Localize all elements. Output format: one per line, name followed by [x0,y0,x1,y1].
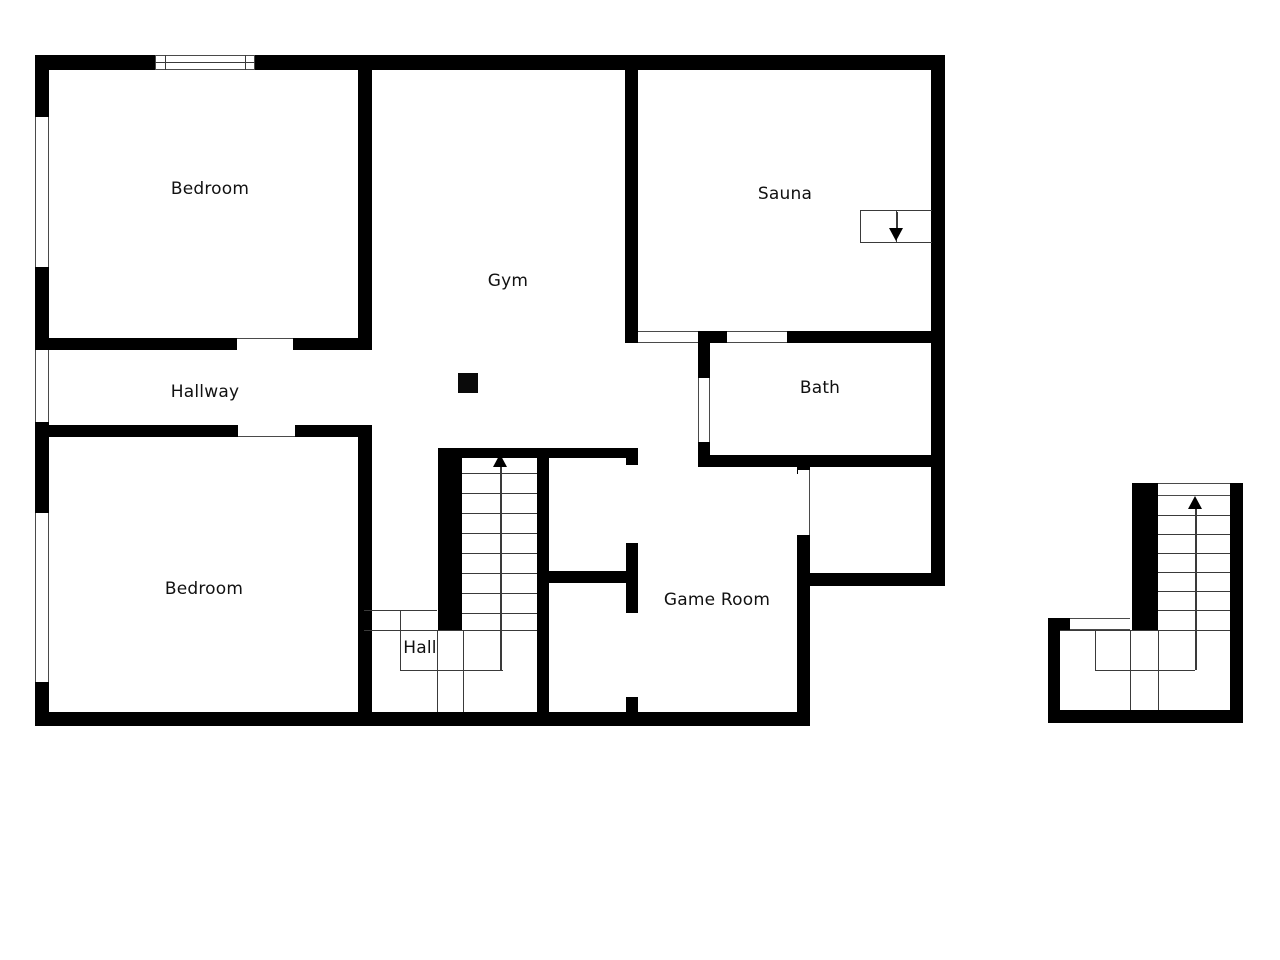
room-label-bedroom-2: Bedroom [165,579,243,599]
wall-segment [35,712,810,726]
stair-tread [1158,553,1230,554]
window-frame-line [1070,618,1130,619]
plan-line [437,630,438,712]
wall-segment [358,70,372,340]
plan-line [1095,670,1195,671]
wall-segment [787,331,931,343]
wall-segment [626,697,638,712]
room-label-gym: Gym [488,271,528,291]
door-opening-line [238,436,295,437]
wall-segment [1048,618,1060,723]
door-opening-line [727,342,787,343]
floor-plan: Bedroom Sauna Gym Hallway Bath Bedroom H… [0,0,1280,960]
wall-segment [35,425,238,437]
wall-segment [358,425,372,712]
plan-line [860,242,932,243]
wall-segment [1048,618,1070,630]
wall-segment [700,455,931,467]
window-frame-line [48,350,49,422]
wall-segment [625,70,638,343]
window-frame-line [48,117,49,267]
stair-tread [1158,534,1230,535]
plan-line [400,610,401,670]
hall-stairs-up-arrow-shaft [500,466,502,670]
wall-segment [35,338,237,350]
wall-segment [255,55,945,70]
plan-line [165,55,166,70]
room-label-hallway: Hallway [171,382,239,402]
plan-line [400,670,503,671]
plan-line [463,630,464,712]
stair-tread [1158,591,1230,592]
hall-stairs-up-arrow [493,454,507,467]
wall-segment [549,571,638,583]
stair-tread [1158,515,1230,516]
wall-segment [438,448,462,630]
door-opening-line [809,470,810,535]
door-opening-line [727,331,787,332]
sauna-steps-down-arrow-shaft [896,212,898,229]
window [35,350,49,422]
room-label-hall: Hall [403,638,436,658]
window-frame-line [35,513,36,682]
door-opening-line [709,378,710,442]
wall-segment [35,55,49,117]
stair-tread [1158,610,1230,611]
window-frame-line [35,350,36,422]
door-opening-line [698,378,699,442]
wall-segment [293,338,372,350]
wall-segment [626,543,638,613]
room-label-game-room: Game Room [664,590,770,610]
gym-column [458,373,478,393]
wall-segment [698,331,710,378]
plan-line [364,630,537,631]
door-opening [237,338,293,350]
window [35,117,49,267]
wall-segment [35,55,155,70]
window-frame-line [35,117,36,267]
plan-line [1095,630,1096,670]
window-frame-line [155,55,255,56]
plan-line [1060,630,1230,631]
door-opening-line [638,342,698,343]
entry-stairs-up-arrow-shaft [1195,508,1197,670]
wall-segment [1230,483,1243,723]
entry-stairs-up-arrow [1188,496,1202,509]
wall-segment [797,535,810,726]
window-frame-line [155,69,255,70]
wall-segment [626,448,638,465]
wall-segment [1132,483,1158,630]
wall-segment [537,448,549,712]
room-label-bath: Bath [800,378,840,398]
wall-segment [810,573,945,586]
sauna-steps-down-arrow [889,228,903,241]
wall-segment [931,55,945,585]
wall-segment [1048,710,1243,723]
room-label-sauna: Sauna [758,184,812,204]
stair-tread [1158,572,1230,573]
room-label-bedroom-1: Bedroom [171,179,249,199]
plan-line [155,62,255,63]
window [35,513,49,682]
window-frame-line [48,513,49,682]
plan-line [245,55,246,70]
door-opening-line [237,338,293,339]
door-opening-line [638,331,698,332]
plan-line [860,210,861,242]
window-frame-line [1158,483,1230,484]
